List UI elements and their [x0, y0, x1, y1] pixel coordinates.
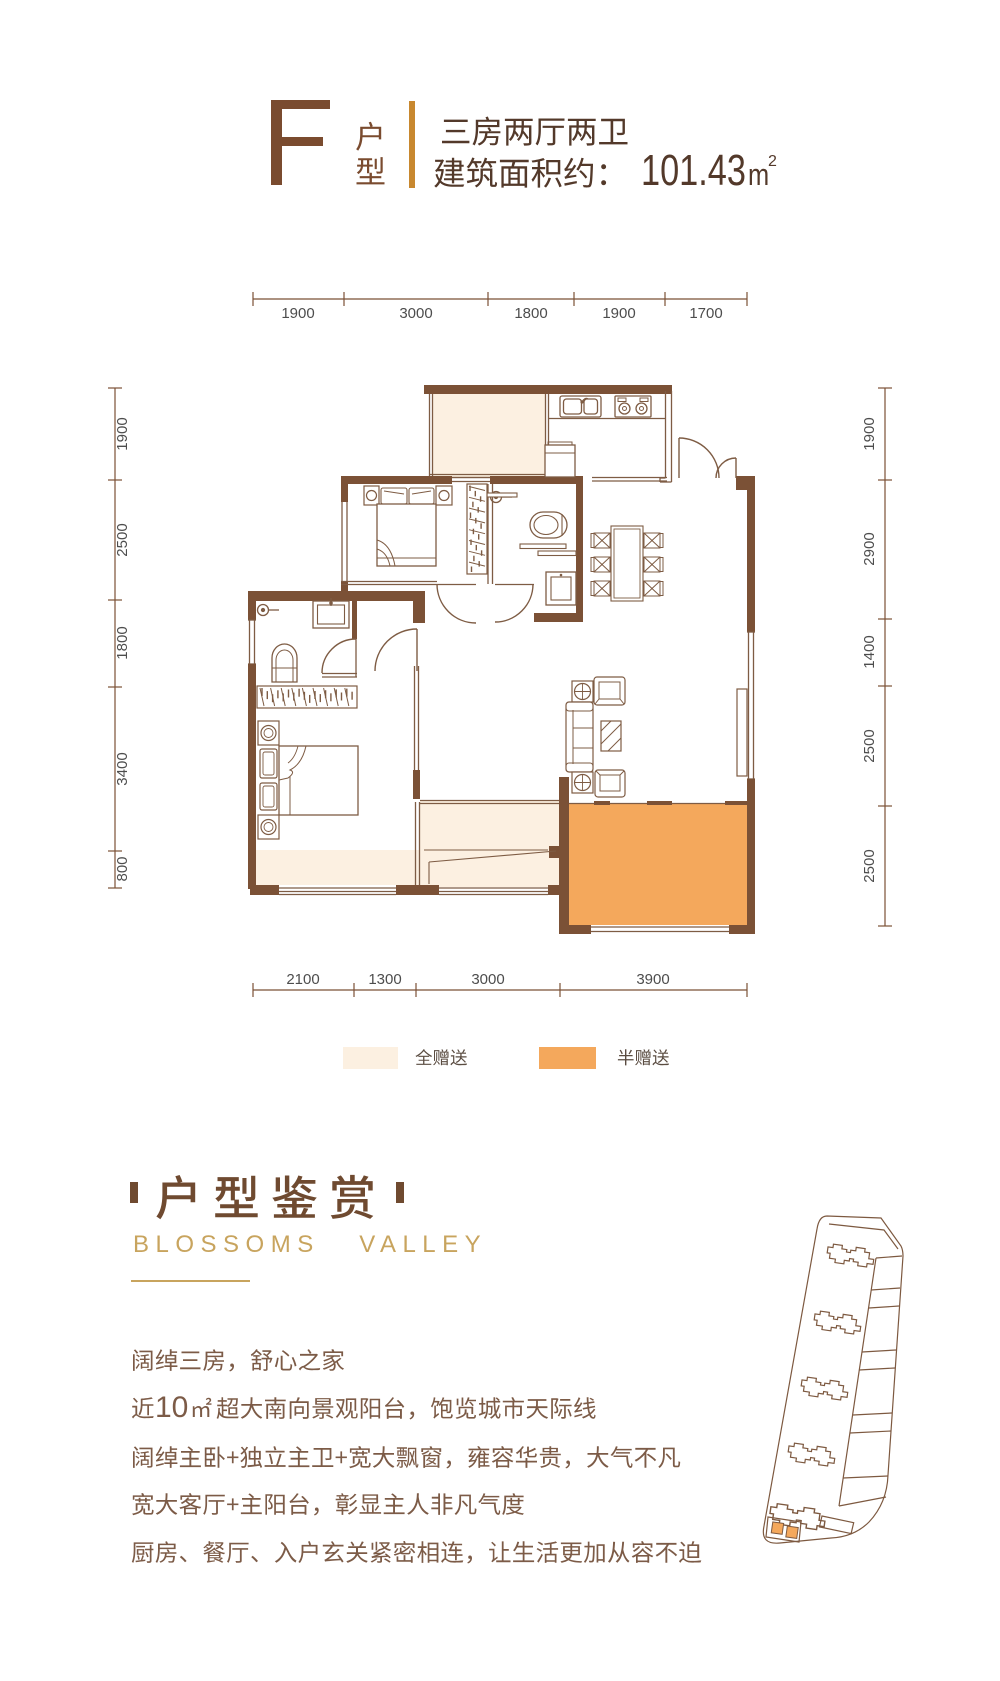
svg-text:1900: 1900: [861, 417, 878, 450]
svg-text:2500: 2500: [861, 729, 878, 762]
svg-text:3400: 3400: [114, 752, 131, 785]
svg-text:1800: 1800: [114, 626, 131, 659]
svg-text:1400: 1400: [861, 635, 878, 668]
svg-text:3900: 3900: [636, 971, 669, 988]
svg-text:1300: 1300: [368, 971, 401, 988]
svg-text:1700: 1700: [689, 305, 722, 322]
svg-text:1900: 1900: [602, 305, 635, 322]
svg-text:2500: 2500: [861, 849, 878, 882]
svg-text:101.43: 101.43: [641, 146, 746, 195]
svg-text:2900: 2900: [861, 532, 878, 565]
svg-text:m: m: [748, 158, 769, 193]
svg-text:1900: 1900: [114, 417, 131, 450]
svg-text:800: 800: [114, 856, 131, 881]
svg-text:2100: 2100: [286, 971, 319, 988]
svg-text:2: 2: [768, 153, 777, 170]
svg-text:2500: 2500: [114, 523, 131, 556]
svg-text:1900: 1900: [281, 305, 314, 322]
svg-text:3000: 3000: [399, 305, 432, 322]
svg-text:BLOSSOMS VALLEY: BLOSSOMS VALLEY: [133, 1231, 487, 1258]
svg-text:10: 10: [155, 1391, 188, 1424]
svg-text:1800: 1800: [514, 305, 547, 322]
svg-text:3000: 3000: [471, 971, 504, 988]
